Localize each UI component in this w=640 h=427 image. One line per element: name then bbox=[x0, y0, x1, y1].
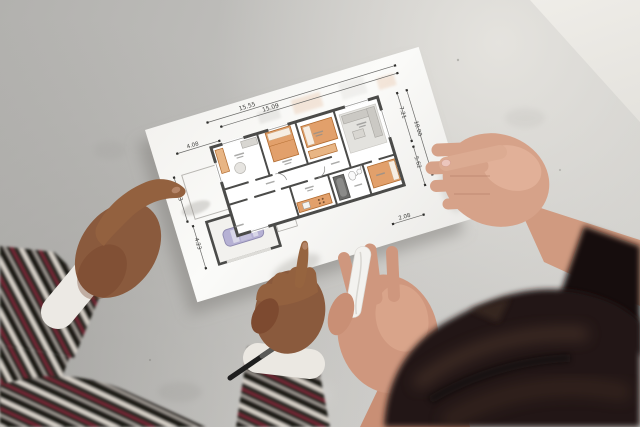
pointing-arm-cuff bbox=[258, 358, 310, 364]
photo-scene: 15.55 15.09 4.08 4.43 4.23 7.21 10.00 5.… bbox=[0, 0, 640, 427]
photo-svg: 15.55 15.09 4.08 4.43 4.23 7.21 10.00 5.… bbox=[0, 0, 640, 427]
index-fingernail bbox=[302, 242, 308, 250]
